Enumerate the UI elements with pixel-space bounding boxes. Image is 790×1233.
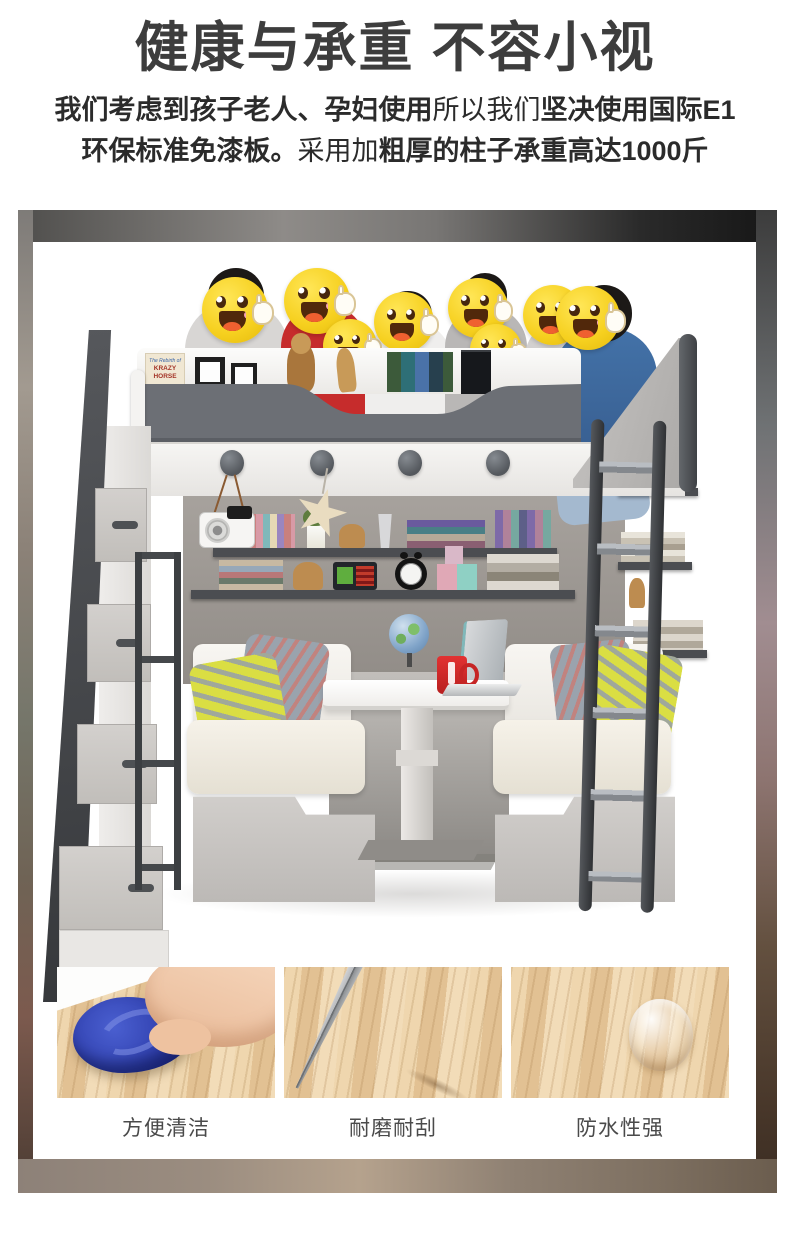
shelf-board-lower xyxy=(191,590,575,599)
thumbs-up-emoji-sticker xyxy=(202,277,268,343)
subtitle: 我们考虑到孩子老人、孕妇使用所以我们坚决使用国际E1 环保标准免漆板。采用加粗厚… xyxy=(0,90,790,172)
left-bench-seat-cushion xyxy=(187,720,365,794)
feature-easy-clean: 方便清洁 xyxy=(57,967,275,1159)
coat-knob xyxy=(486,450,510,476)
emoji-thumb xyxy=(334,292,356,316)
thumbs-up-emoji-sticker xyxy=(374,292,434,352)
wooden-elephant-figure xyxy=(293,562,323,590)
page: 健康与承重 不容小视 我们考虑到孩子老人、孕妇使用所以我们坚决使用国际E1 环保… xyxy=(0,0,790,1193)
subtitle-seg: 粗厚的柱子承重高达1000斤 xyxy=(378,136,708,166)
book-stack xyxy=(219,560,283,590)
feature-caption: 耐磨耐刮 xyxy=(284,1112,502,1142)
desk-globe xyxy=(389,614,429,654)
blade-shadow xyxy=(403,1064,471,1098)
coat-knob xyxy=(310,450,334,476)
coat-knob xyxy=(220,450,244,476)
wiping-hand xyxy=(145,967,275,1047)
feature-row: 方便清洁 耐磨耐刮 防水性强 xyxy=(33,967,756,1159)
subtitle-seg: 采用加 xyxy=(297,136,378,166)
photo-blurred-room-edge-right xyxy=(756,210,777,1193)
guard-rail-wave xyxy=(137,372,581,446)
wooden-cat-figure xyxy=(339,524,365,548)
laptop-base xyxy=(442,684,523,696)
scratch-test-photo xyxy=(284,967,502,1098)
table-pedestal xyxy=(401,708,433,850)
book-stack xyxy=(407,520,485,548)
emoji-thumb xyxy=(605,309,626,333)
emoji-mouth xyxy=(219,311,245,331)
coat-knob xyxy=(398,450,422,476)
page-title: 健康与承重 不容小视 xyxy=(0,0,790,80)
hanging-camera xyxy=(199,512,255,548)
emoji-mouth xyxy=(573,319,599,338)
subtitle-seg: 我们考虑到孩子老人、孕妇使用 xyxy=(54,95,432,125)
photo-blurred-room-edge-top xyxy=(18,210,777,242)
photo-blurred-room-edge-bottom xyxy=(18,1159,777,1193)
easy-clean-photo xyxy=(57,967,275,1098)
book-subtitle: The Rebirth of xyxy=(146,358,184,365)
feature-waterproof: 防水性强 xyxy=(511,967,729,1159)
bunk-ladder xyxy=(579,419,670,913)
water-drop-photo xyxy=(511,967,729,1098)
staircase-hand-rail xyxy=(135,552,181,890)
emoji-thumb xyxy=(252,301,274,325)
emoji-thumb xyxy=(494,300,514,322)
book-stack xyxy=(487,554,559,590)
subtitle-line-1: 我们考虑到孩子老人、孕妇使用所以我们坚决使用国际E1 xyxy=(0,90,790,131)
product-photo: The Rebirth of KRAZY HORSE xyxy=(18,210,777,1193)
emoji-mouth xyxy=(390,323,414,341)
upper-bunk-guard-rail xyxy=(137,372,581,446)
retro-phone-toy xyxy=(333,562,377,590)
subtitle-seg: 所以我们 xyxy=(432,95,540,125)
photo-white-backdrop: The Rebirth of KRAZY HORSE xyxy=(33,242,756,1159)
stair-drawer xyxy=(95,488,147,562)
alarm-clock xyxy=(395,558,427,590)
water-droplet xyxy=(629,999,693,1071)
feature-scratch-resistant: 耐磨耐刮 xyxy=(284,967,502,1159)
book-row xyxy=(495,510,551,548)
subtitle-seg: 坚决使用国际E1 xyxy=(540,95,735,125)
metal-blade xyxy=(287,967,371,1092)
emoji-mouth xyxy=(464,309,488,327)
subtitle-seg: 环保标准免漆板。 xyxy=(81,136,297,166)
photo-blurred-room-edge-left xyxy=(18,210,33,1193)
subtitle-line-2: 环保标准免漆板。采用加粗厚的柱子承重高达1000斤 xyxy=(0,131,790,172)
emoji-thumb xyxy=(420,314,440,336)
emoji-mouth xyxy=(301,302,327,322)
alphabet-blocks xyxy=(437,564,477,590)
thumbs-up-emoji-sticker xyxy=(556,286,620,350)
table-foot-plate xyxy=(358,840,485,860)
right-corner-post xyxy=(679,334,697,492)
feature-caption: 防水性强 xyxy=(511,1112,729,1142)
feature-caption: 方便清洁 xyxy=(57,1112,275,1142)
